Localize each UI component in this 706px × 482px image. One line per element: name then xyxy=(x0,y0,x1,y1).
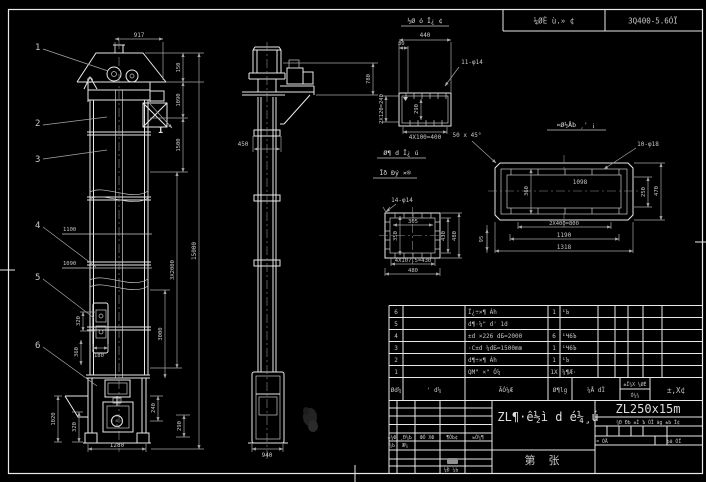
channel-hole-ticks xyxy=(406,93,446,126)
bom-row-qty: 6 xyxy=(552,333,556,340)
bom-row-no: 1 xyxy=(394,369,398,376)
bom-row-no: 2 xyxy=(394,357,398,364)
bom-header-qty: Ø¶lg xyxy=(553,387,568,394)
bom-header-name: ÃÓ¼Æ xyxy=(499,387,514,394)
dim-1020: 1020 xyxy=(51,412,57,425)
section-mark: I xyxy=(158,126,163,136)
chamfer-leader xyxy=(472,141,496,163)
dim-3000: 3000 xyxy=(158,327,164,340)
dim-95: 95 xyxy=(479,236,485,243)
bom-row-qty: 1 xyxy=(552,357,556,364)
flange-dim-extensions xyxy=(385,213,462,276)
flange-holes-leader xyxy=(386,204,396,212)
sheet-border xyxy=(0,10,706,482)
bom-row-no: 4 xyxy=(394,333,398,340)
detail-channel-title: ½Ø ó Ī¿ ¢ xyxy=(407,16,442,25)
screen-smudge xyxy=(303,407,318,432)
dim-360: 360 xyxy=(74,347,80,357)
dim-290: 290 xyxy=(177,421,183,431)
dim-350: 350 xyxy=(393,231,399,241)
model-number: ZL250x15m xyxy=(615,402,680,416)
detail-plate: ¤Ø½Åb ¸' ¡ 50 x 45° 10-φ18 1098 360 250 … xyxy=(453,120,665,253)
dim-440: 440 xyxy=(420,32,431,39)
bom-row-material: ¼¶Æ· xyxy=(562,369,576,376)
rev-cell: ¼Ь xyxy=(389,443,395,449)
side-head-geometry xyxy=(242,47,314,124)
balloon-5: 5 xyxy=(35,273,40,283)
level-1090: 1090 xyxy=(63,261,76,267)
dim-15000: 15000 xyxy=(191,242,198,260)
front-view: I 1 2 3 4 5 6 917 150 1090 1500 3X2000 3… xyxy=(35,32,204,452)
detail-flange-title-1: Ø¶ d Ī¿ ú xyxy=(383,148,418,157)
side-view: 450 780 940 xyxy=(238,42,378,460)
approver-label: ¼Ð ¼Ь xyxy=(444,468,459,474)
cad-drawing: ¼ØÈ ù.» ¢ 3Q400-5.6ÓÏ I 1 2 3 4 5 6 xyxy=(0,0,706,482)
top-bar: ¼ØÈ ù.» ¢ 3Q400-5.6ÓÏ xyxy=(503,10,703,32)
dim-240: 240 xyxy=(151,403,157,413)
bom-row-material: ¹Ч6Ъ xyxy=(562,345,577,352)
side-boot xyxy=(248,372,288,443)
dim-430: 430 xyxy=(441,231,447,241)
label-11-holes: 11-φ14 xyxy=(461,59,483,66)
bom-row-material: ¹Ч6Ъ xyxy=(562,333,577,340)
cad-viewport: ¼ØÈ ù.» ¢ 3Q400-5.6ÓÏ I 1 2 3 4 5 6 xyxy=(0,0,706,482)
dim-940: 940 xyxy=(262,452,273,459)
dim-180: 180 xyxy=(94,353,104,359)
bom-row-name: Ï¿÷×¶ Àh xyxy=(468,309,497,316)
chamfer-note: 50 x 45° xyxy=(453,132,482,139)
channel-dim-extensions xyxy=(382,42,451,134)
stage-strip: ¼Ð ÐЬ ±Ì Ъ ÓÏ àg ±Ь Ĭ¢ xyxy=(616,418,680,426)
rev-header: ±¼Ф xyxy=(388,435,397,441)
label-10-holes: 10-φ18 xyxy=(637,141,659,148)
bom-row-no: 3 xyxy=(394,345,398,352)
dim-780: 780 xyxy=(366,74,372,84)
dim-1318: 1318 xyxy=(557,244,572,251)
dim-150: 150 xyxy=(176,63,182,73)
sheet-glyph-2: 张 xyxy=(549,454,560,467)
dim-450: 450 xyxy=(238,141,249,148)
bom-row-name: d¶·¼" d' 1d xyxy=(468,321,508,328)
dim-250: 250 xyxy=(641,187,647,197)
balloon-3: 3 xyxy=(35,155,40,165)
rev-header: ¶ÓЬ¢ xyxy=(446,434,458,441)
dim-1500: 1500 xyxy=(176,138,182,151)
bom-header-no: Ød¼ xyxy=(391,387,402,394)
channel-holes-leader xyxy=(445,67,459,86)
bom-header-material: ¼Å dÏ xyxy=(587,387,605,394)
bom-row-qty: 1 xyxy=(552,345,556,352)
rev-header: ьÓ¼¶ xyxy=(472,434,484,441)
bom-row-name: QМ" ×" Ó¼ xyxy=(468,369,501,376)
bom-table: 6 Ï¿÷×¶ Àh 1 ¹Ъ 5 d¶·¼" d' 1d 4 ±d ×226 … xyxy=(389,306,703,474)
dim-30: 30 xyxy=(398,41,405,47)
bom-row-name: d¶÷×¶ Àh xyxy=(468,357,497,364)
bom-header-weight-top: ±Ï¼Х ¼ØÈ xyxy=(623,380,646,388)
scale-right: Ьã ÓÏ xyxy=(667,438,682,445)
rev-cell: Ж¼ xyxy=(402,443,408,449)
top-bar-cell-b: 3Q400-5.6ÓÏ xyxy=(628,17,678,26)
title-block: ±¼Ф ¸Ð¼Ь ФÓ ХФ ¶ÓЬ¢ ьÓ¼¶ ¼Ь Ж¼ ¼Ð ¼Ь ZL¶… xyxy=(388,401,703,474)
dim-1090: 1090 xyxy=(176,93,182,106)
front-bucket-door xyxy=(93,303,108,353)
dim-470: 470 xyxy=(654,186,660,196)
balloon-1: 1 xyxy=(35,43,40,53)
bom-row-name: ±d ×226 dБ=2000 xyxy=(468,333,523,340)
dim-320-bucket: 320 xyxy=(76,316,82,326)
detail-flange: Ø¶ d Ī¿ ú Īð Ðý ×® 14-φ14 305 350 430 48… xyxy=(373,148,462,276)
dim-305: 305 xyxy=(408,219,418,225)
dim-320-boot: 320 xyxy=(72,422,78,432)
bom-row-qty: 1 xyxy=(552,309,556,316)
bom-row-material: ¹Ъ xyxy=(562,309,570,316)
dim-1280: 1280 xyxy=(110,442,125,449)
dim-4x100: 4X100=400 xyxy=(409,134,442,141)
signature-stamp xyxy=(447,458,458,464)
sheet-glyph-1: 第 xyxy=(525,453,536,467)
level-1100: 1100 xyxy=(63,227,76,233)
label-14-holes: 14-φ14 xyxy=(391,197,413,204)
drawing-name: ZL¶·ê½ì d é¼¸ú xyxy=(497,410,598,424)
front-boot xyxy=(65,378,151,443)
bom-header-remark: ±,Х¢ xyxy=(667,386,685,395)
balloon-6: 6 xyxy=(35,341,40,351)
bom-row-no: 6 xyxy=(394,309,398,316)
balloon-4: 4 xyxy=(35,221,40,231)
bom-header-code: ' d¼ xyxy=(427,387,442,394)
dim-290-inner: 290 xyxy=(414,104,420,114)
detail-flange-title-2: Īð Ðý ×® xyxy=(379,168,410,177)
rev-header: ФÓ ХФ xyxy=(420,434,435,441)
scale-left: = ÓÅ xyxy=(596,438,608,445)
rev-header: ¸Ð¼Ь xyxy=(400,435,412,441)
bom-row-qty: 1Х xyxy=(550,369,558,376)
dim-360-plate: 360 xyxy=(524,186,530,196)
detail-channel: ½Ø ó Ī¿ ¢ 440 30 2X120=240 290 4X100=400… xyxy=(379,16,483,141)
bom-row-no: 5 xyxy=(394,321,398,328)
dim-1098: 1098 xyxy=(573,179,588,186)
dim-917: 917 xyxy=(134,32,145,39)
dim-3x2000: 3X2000 xyxy=(170,260,176,280)
bom-row-name: ·C±d ¼dБ=1500mm xyxy=(468,345,523,352)
dim-2x400: 2X400=800 xyxy=(549,221,579,227)
weld-mark xyxy=(403,97,408,101)
top-bar-cell-a: ¼ØÈ ù.» ¢ xyxy=(534,17,575,26)
detail-plate-title: ¤Ø½Åb ¸' ¡ xyxy=(556,120,595,129)
bom-header-weight-bottom: Ó¼¼ xyxy=(631,392,640,399)
dim-1190: 1190 xyxy=(557,232,572,239)
balloon-2: 2 xyxy=(35,119,40,129)
dim-4x107: 4X107.5=430 xyxy=(395,258,431,264)
dim-480-outer: 480 xyxy=(408,268,418,274)
dim-2x120: 2X120=240 xyxy=(379,94,385,124)
dim-480: 480 xyxy=(452,231,458,241)
centering-tick xyxy=(0,242,706,482)
bom-row-material: ¹Ъ xyxy=(562,357,570,364)
